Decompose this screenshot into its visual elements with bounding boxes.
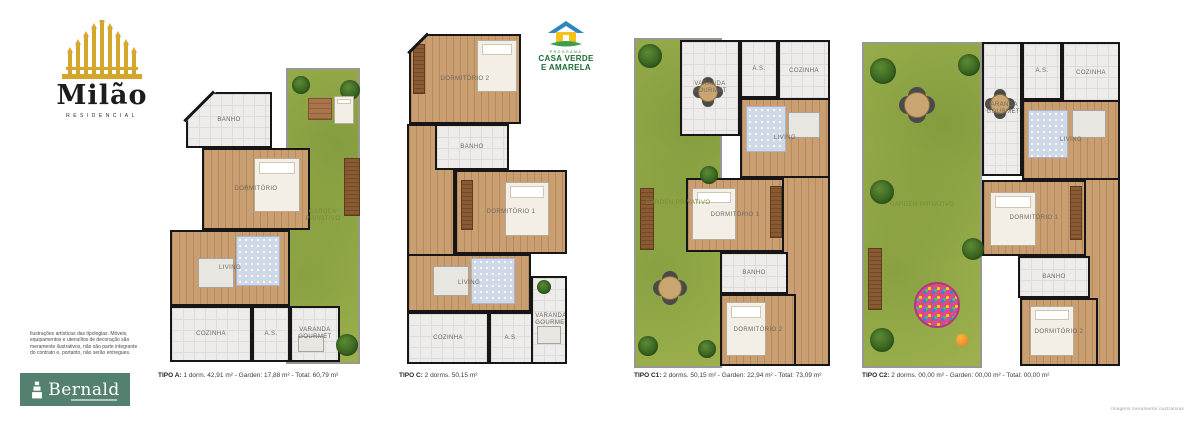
duomo-cathedral-icon	[54, 20, 150, 82]
brand-subtitle: RESIDENCIAL	[48, 113, 156, 119]
room-label: VARANDA GOURMET	[987, 102, 1018, 116]
room-label: A.S.	[753, 66, 766, 73]
rug-icon	[236, 236, 280, 286]
fine-print: Imagens meramente ilustrativas	[1111, 406, 1184, 411]
floorplan-tipo-c2: GARDEN PRIVATIVOVARANDA GOURMETA.S.COZIN…	[862, 30, 1120, 368]
developer-name: Bernald	[48, 380, 120, 400]
ballpit-icon	[914, 282, 960, 328]
room-cozinha: COZINHA	[407, 312, 489, 364]
brand-name: Milão	[48, 82, 156, 110]
room-label: LIVING	[774, 135, 796, 142]
room-a-s: A.S.	[740, 40, 778, 98]
room-banho: BANHO	[435, 124, 509, 170]
room-label: DORMITÓRIO 2	[441, 76, 490, 83]
room-cozinha: COZINHA	[170, 306, 252, 362]
plan-caption-tipo-c: TIPO C: 2 dorms. 50,15 m²	[399, 372, 477, 379]
room-label: COZINHA	[789, 68, 819, 75]
room-label: BANHO	[217, 117, 240, 124]
tree-icon	[638, 44, 662, 68]
bench-icon	[461, 180, 473, 230]
plan-caption-tipo-a: TIPO A: 1 dorm. 42,91 m² - Garden: 17,88…	[158, 372, 338, 379]
castle-icon	[30, 380, 44, 400]
tree-icon	[962, 238, 984, 260]
room-label: LIVING	[458, 280, 480, 287]
rug-icon	[1028, 110, 1068, 158]
tree-icon	[958, 54, 980, 76]
room-label: BANHO	[460, 144, 483, 151]
room-label: COZINHA	[1076, 70, 1106, 77]
poster-canvas: Milão RESIDENCIAL Ilustrações artísticas…	[0, 0, 1200, 424]
plan-areas-label: 2 dorms. 50,15 m²	[423, 372, 478, 379]
floorplan-tipo-c: DORMITÓRIO 2BANHODORMITÓRIO 1LIVINGCOZIN…	[399, 28, 569, 368]
room-a-s: A.S.	[1022, 42, 1062, 100]
room-varanda-gourmet: VARANDA GOURMET	[982, 42, 1022, 176]
floorplan-tipo-a: GARDEN PRIVATIVOBANHODORMITÓRIOLIVINGCOZ…	[158, 62, 362, 368]
plan-type-label: TIPO C2:	[862, 372, 889, 379]
room-label: LIVING	[219, 265, 241, 272]
room-label: VARANDA GOURMET	[535, 313, 563, 327]
room-banho: BANHO	[1018, 256, 1090, 298]
tree-icon	[292, 76, 310, 94]
ball-icon	[956, 334, 968, 346]
room-label: BANHO	[1042, 274, 1065, 281]
tree-icon	[638, 336, 658, 356]
room-label: DORMITÓRIO 2	[1035, 329, 1084, 336]
room-label: A.S.	[265, 331, 278, 338]
plan-areas-label: 2 dorms. 00,00 m² - Garden: 00,00 m² - T…	[889, 372, 1049, 379]
room-a-s: A.S.	[489, 312, 533, 364]
rtable-icon	[904, 92, 930, 118]
room-label: BANHO	[742, 270, 765, 277]
room-label: DORMITÓRIO 1	[487, 209, 536, 216]
room-label: DORMITÓRIO	[235, 186, 278, 193]
room-label: GARDEN PRIVATIVO	[890, 202, 955, 209]
room-a-s: A.S.	[252, 306, 290, 362]
room-cozinha: COZINHA	[778, 40, 830, 102]
tree-icon	[336, 334, 358, 356]
rtable-icon	[658, 276, 682, 300]
plan-type-label: TIPO C1:	[634, 372, 661, 379]
room-label: DORMITÓRIO 2	[734, 327, 783, 334]
room-label: VARANDA GOURMET	[686, 81, 734, 95]
room-cozinha: COZINHA	[1062, 42, 1120, 104]
tree-icon	[698, 340, 716, 358]
room-label: DORMITÓRIO 1	[711, 212, 760, 219]
room-label: A.S.	[505, 335, 518, 342]
plan-areas-label: 1 dorm. 42,91 m² - Garden: 17,88 m² - To…	[182, 372, 339, 379]
room-label: VARANDA GOURMET	[295, 327, 335, 341]
bed-icon	[477, 40, 517, 92]
room-varanda-gourmet: VARANDA GOURMET	[290, 306, 340, 362]
room-label: LIVING	[1060, 137, 1082, 144]
deck-icon	[308, 98, 332, 120]
room-label: DORMITÓRIO 1	[1010, 215, 1059, 222]
room-label: GARDEN PRIVATIVO	[646, 200, 711, 207]
tree-icon	[700, 166, 718, 184]
bed-icon	[334, 96, 354, 124]
developer-tagline-bar	[71, 399, 117, 402]
disclaimer-text: Ilustrações artísticas das tipologias. M…	[30, 331, 144, 357]
room-label: A.S.	[1036, 68, 1049, 75]
cut-icon	[186, 92, 216, 122]
room-label: COZINHA	[196, 331, 226, 338]
plan-caption-tipo-c2: TIPO C2: 2 dorms. 00,00 m² - Garden: 00,…	[862, 372, 1049, 379]
table-icon	[1072, 110, 1106, 138]
tree-icon	[870, 328, 894, 352]
floorplan-tipo-c1: GARDEN PRIVATIVOVARANDA GOURMETA.S.COZIN…	[634, 30, 830, 368]
bench-icon	[868, 248, 882, 310]
room-varanda-gourmet: VARANDA GOURMET	[680, 40, 740, 136]
tree-icon	[537, 280, 551, 294]
developer-logo: Bernald	[20, 373, 130, 406]
plan-areas-label: 2 dorms. 50,15 m² - Garden: 22,94 m² - T…	[661, 372, 821, 379]
plan-type-label: TIPO A:	[158, 372, 182, 379]
table-icon	[198, 258, 234, 288]
tree-icon	[870, 180, 894, 204]
room-label: GARDEN PRIVATIVO	[293, 209, 353, 223]
table-icon	[537, 326, 561, 344]
brand-logo: Milão RESIDENCIAL	[48, 20, 156, 119]
bench-icon	[1070, 186, 1082, 240]
tree-icon	[870, 58, 896, 84]
bench-icon	[770, 186, 782, 238]
bench-icon	[344, 158, 360, 216]
room-label: COZINHA	[433, 335, 463, 342]
bench-icon	[640, 188, 654, 250]
rug-icon	[746, 106, 786, 152]
room-banho: BANHO	[720, 252, 788, 294]
plan-caption-tipo-c1: TIPO C1: 2 dorms. 50,15 m² - Garden: 22,…	[634, 372, 821, 379]
plan-type-label: TIPO C:	[399, 372, 423, 379]
